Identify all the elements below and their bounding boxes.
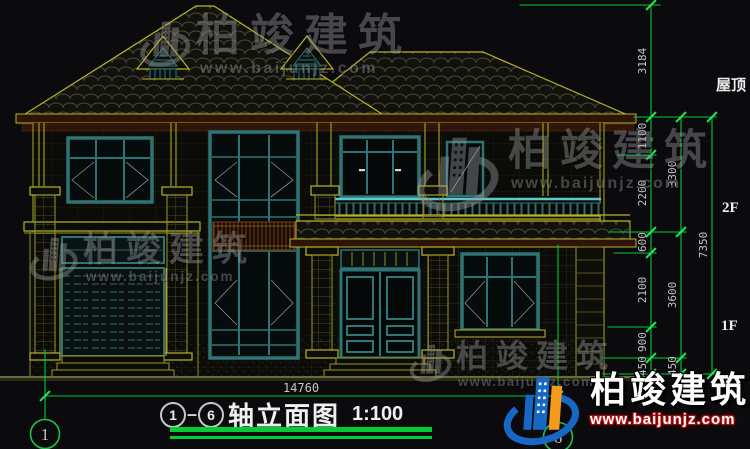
dim-value: 450 (636, 356, 649, 376)
garage-roller-door (60, 268, 166, 356)
title-scale: 1:100 (352, 403, 403, 426)
corner-pilaster-right (576, 247, 604, 377)
title-axis-separator: – (187, 404, 197, 425)
level-label-1f: 1F (721, 318, 738, 334)
dim-value: 1100 (636, 123, 649, 150)
window-2f-left (68, 138, 152, 202)
bottom-dim-value: 14760 (283, 381, 319, 395)
window-1f-right (455, 254, 545, 337)
entrance-double-door (341, 270, 419, 358)
dim-chain-middle: 3300 3600 450 (666, 161, 679, 376)
title-axis-from: 1 (160, 402, 186, 428)
dim-value: 600 (636, 232, 649, 252)
dim-value: 3600 (666, 282, 679, 309)
level-label-2f: 2F (722, 200, 739, 216)
entrance-transom (341, 250, 419, 268)
roof (16, 6, 636, 123)
elevation-drawing: 3184 1100 2200 600 2100 900 450 3300 360… (0, 0, 750, 449)
title-axis-to: 6 (198, 402, 224, 428)
title-underline-thick (170, 427, 432, 432)
level-label-roof: 屋顶 (716, 77, 746, 94)
axis-bubble-1: 1 (31, 420, 60, 449)
dim-value: 450 (666, 356, 679, 376)
window-sill (455, 330, 545, 337)
axis-number: 6 (554, 428, 563, 447)
title-underline-thin (170, 436, 432, 439)
dim-value: 900 (636, 332, 649, 352)
dim-value: 2200 (636, 180, 649, 207)
house-elevation (0, 6, 658, 380)
entrance-steps (324, 358, 436, 377)
dim-value: 3300 (666, 161, 679, 188)
window-stairwell (210, 132, 298, 358)
axis-number: 1 (41, 425, 50, 444)
window-2f-right (447, 142, 483, 196)
dim-chain-overall: 7350 (697, 232, 710, 259)
cad-elevation-screenshot: 3184 1100 2200 600 2100 900 450 3300 360… (0, 0, 750, 449)
garage-transom-window (62, 237, 164, 263)
dim-value: 3184 (636, 47, 649, 74)
ground-line (0, 377, 658, 380)
window-2f-balcony-door (341, 137, 419, 197)
dim-value: 7350 (697, 232, 710, 259)
axis-bubble-6: 6 (544, 423, 573, 449)
garage-steps (52, 356, 174, 377)
dim-value: 2100 (636, 277, 649, 304)
